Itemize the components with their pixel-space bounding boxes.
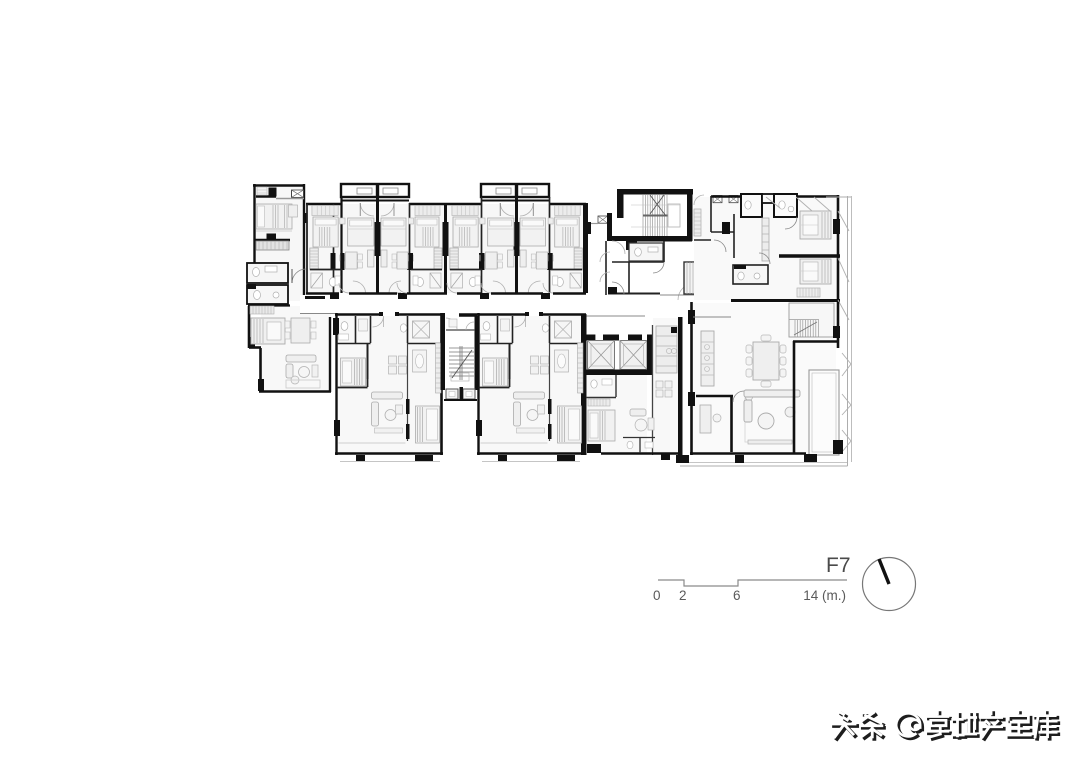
svg-text:6: 6: [733, 588, 741, 603]
svg-text:14 (m.): 14 (m.): [803, 588, 846, 603]
svg-text:2: 2: [679, 588, 687, 603]
svg-text:F7: F7: [826, 554, 851, 577]
svg-text:0: 0: [653, 588, 661, 603]
